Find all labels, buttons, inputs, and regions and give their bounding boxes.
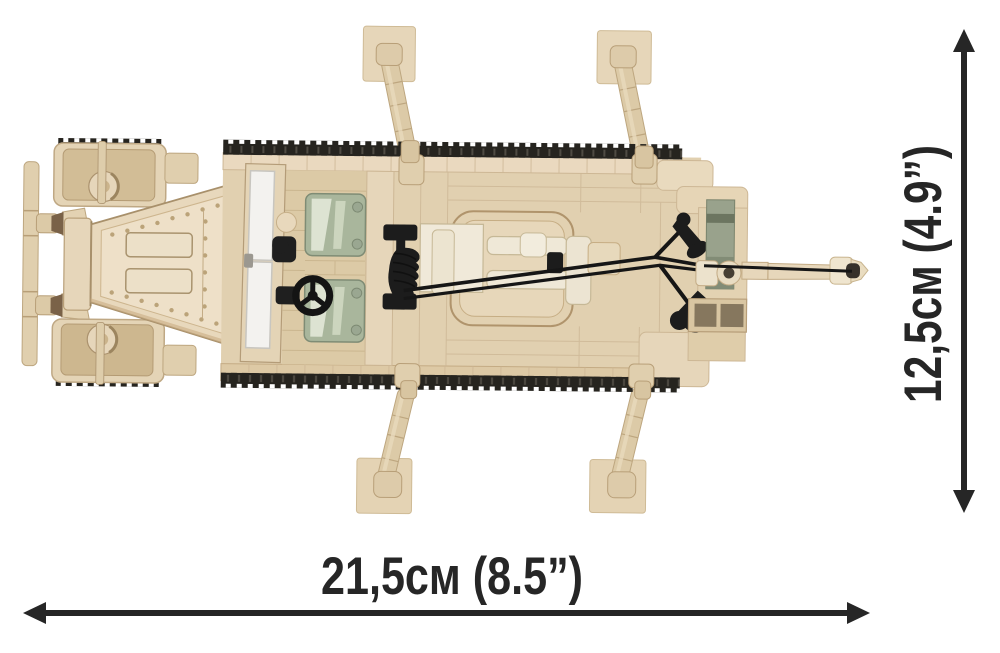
svg-text:12,5см (4.9”): 12,5см (4.9”) (894, 145, 953, 403)
svg-text:21,5см (8.5”): 21,5см (8.5”) (321, 547, 583, 606)
